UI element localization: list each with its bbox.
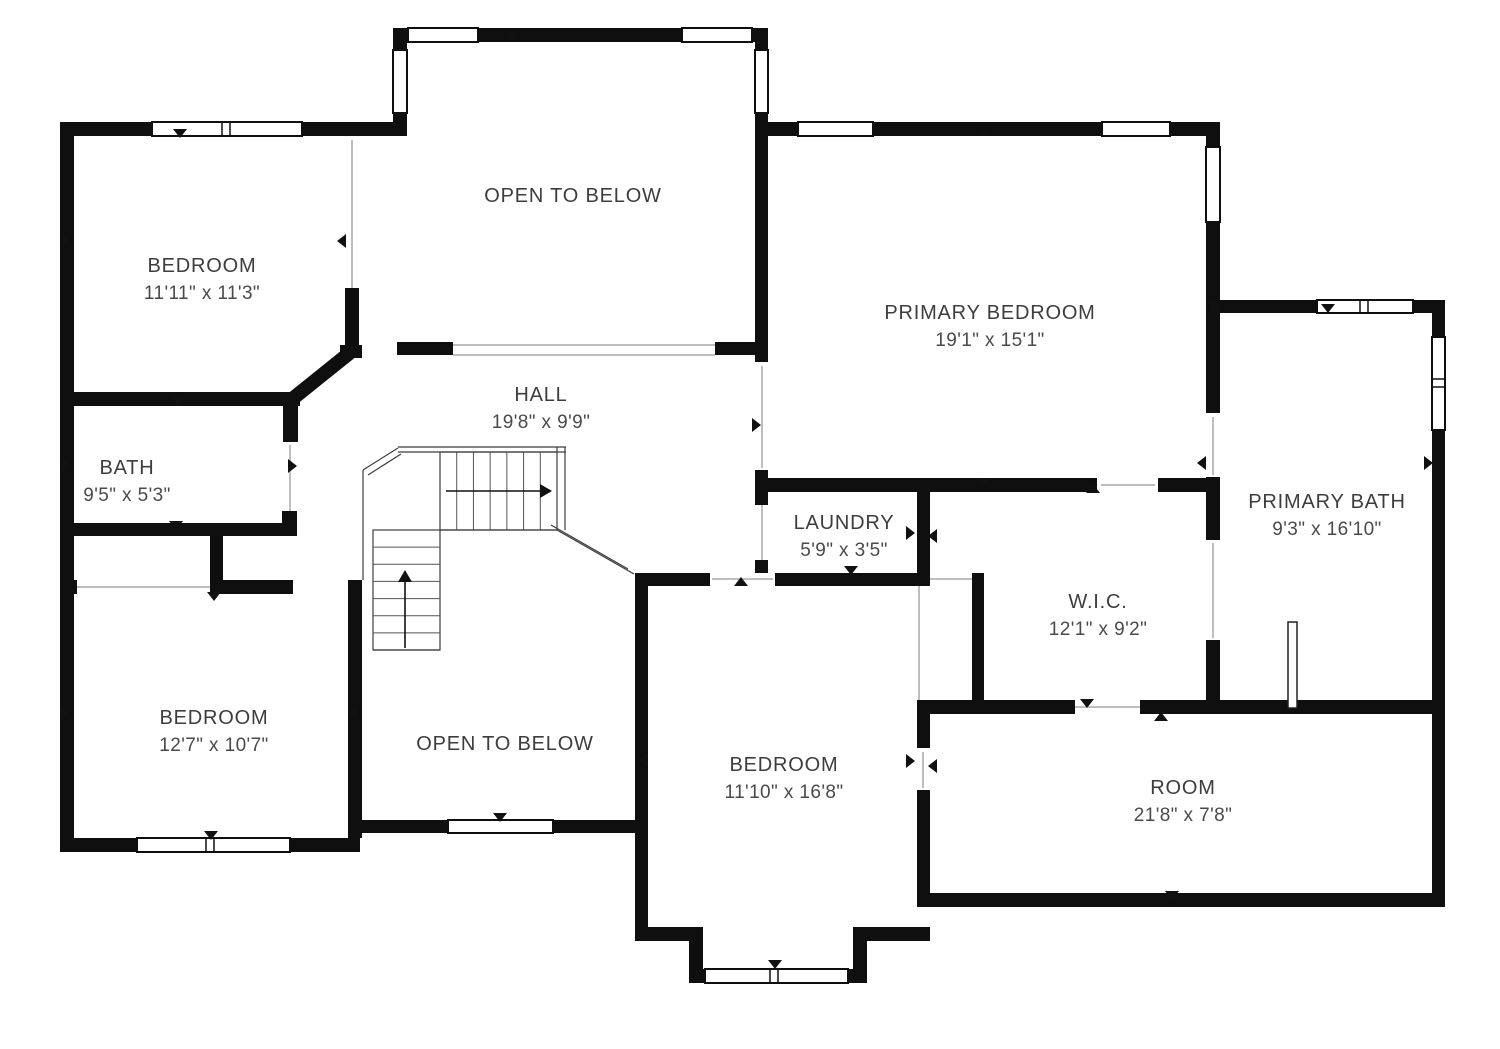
room-dims: 11'10" x 16'8": [725, 782, 844, 803]
stair-lower-flight: [373, 530, 440, 650]
fixtures-layer: [1288, 622, 1297, 708]
wall-segment: [397, 342, 453, 355]
window-marker: [448, 820, 553, 833]
wall-segment: [972, 573, 984, 708]
wall-segment: [917, 700, 1075, 714]
window-marker: [1432, 337, 1445, 430]
room-dims: 12'7" x 10'7": [159, 735, 268, 756]
wall-segment: [210, 580, 293, 594]
wall-segment: [755, 478, 1097, 492]
room-dims: 9'3" x 16'10": [1272, 519, 1381, 540]
floor-plan-canvas: BEDROOM11'11" x 11'3"OPEN TO BELOWPRIMAR…: [0, 0, 1500, 1049]
wall-segment: [917, 700, 930, 748]
wall-segment: [917, 492, 930, 573]
wall-segment: [1206, 477, 1220, 540]
room-dims: 9'5" x 5'3": [83, 485, 170, 506]
room-name: BEDROOM: [160, 707, 269, 729]
room-name: BEDROOM: [730, 754, 839, 776]
room-name: OPEN TO BELOW: [484, 185, 661, 207]
room-dims: 12'1" x 9'2": [1049, 619, 1147, 640]
wall-segment: [755, 492, 768, 505]
wall-segment: [755, 136, 768, 362]
window-marker: [393, 50, 407, 113]
wall-segment: [853, 927, 930, 941]
room-name: ROOM: [1150, 777, 1215, 799]
room-dims: 5'9" x 3'5": [800, 540, 887, 561]
shower-glass-panel: [1288, 622, 1297, 708]
room-name: OPEN TO BELOW: [416, 733, 593, 755]
room-name: PRIMARY BATH: [1248, 491, 1405, 513]
room-name: BATH: [99, 457, 154, 479]
wall-segment: [755, 560, 768, 573]
wall-segment: [775, 573, 930, 586]
wall-segment: [282, 511, 297, 536]
window-marker: [408, 28, 478, 42]
room-dims: 11'11" x 11'3": [144, 283, 260, 304]
room-dims: 19'1" x 15'1": [935, 330, 1044, 351]
room-label-open-to-below-top: OPEN TO BELOW: [484, 185, 661, 207]
wall-segment: [60, 580, 77, 594]
room-dims: 21'8" x 7'8": [1134, 805, 1232, 826]
room-dims: 19'8" x 9'9": [492, 412, 590, 433]
wall-segment: [1206, 300, 1220, 413]
room-label-open-to-below-bottom: OPEN TO BELOW: [416, 733, 593, 755]
wall-segment: [60, 122, 74, 852]
window-marker: [1206, 147, 1220, 222]
room-name: LAUNDRY: [794, 512, 895, 534]
window-marker: [1102, 122, 1170, 136]
wall-segment: [917, 893, 1445, 907]
room-name: W.I.C.: [1068, 591, 1127, 613]
floor-plan: BEDROOM11'11" x 11'3"OPEN TO BELOWPRIMAR…: [0, 0, 1500, 1049]
room-name: HALL: [514, 384, 567, 406]
room-name: BEDROOM: [148, 255, 257, 277]
room-name: PRIMARY BEDROOM: [884, 302, 1095, 324]
window-marker: [705, 969, 848, 983]
window-marker: [682, 28, 752, 42]
window-marker: [755, 50, 768, 113]
window-marker: [798, 122, 873, 136]
wall-segment: [917, 790, 930, 893]
